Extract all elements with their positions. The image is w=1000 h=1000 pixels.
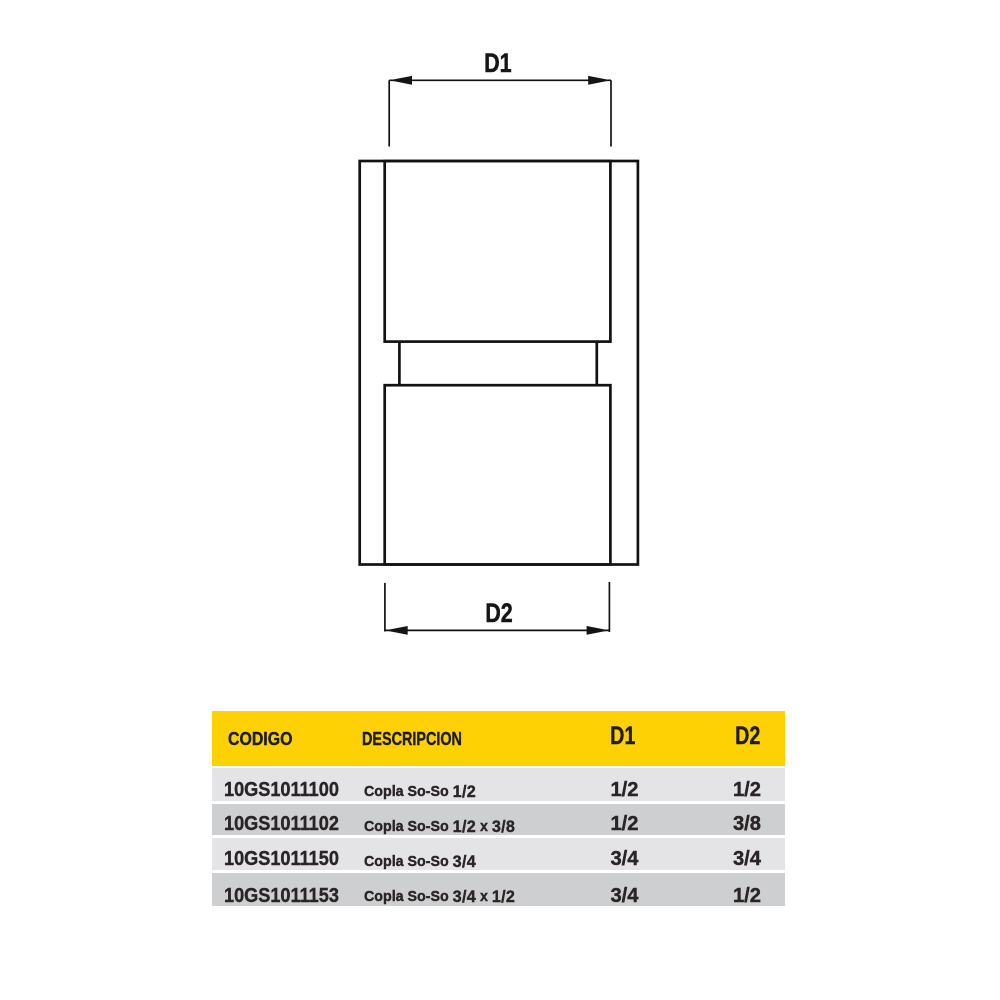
svg-text:D2: D2 [485, 599, 512, 629]
svg-text:D1: D1 [484, 49, 511, 79]
